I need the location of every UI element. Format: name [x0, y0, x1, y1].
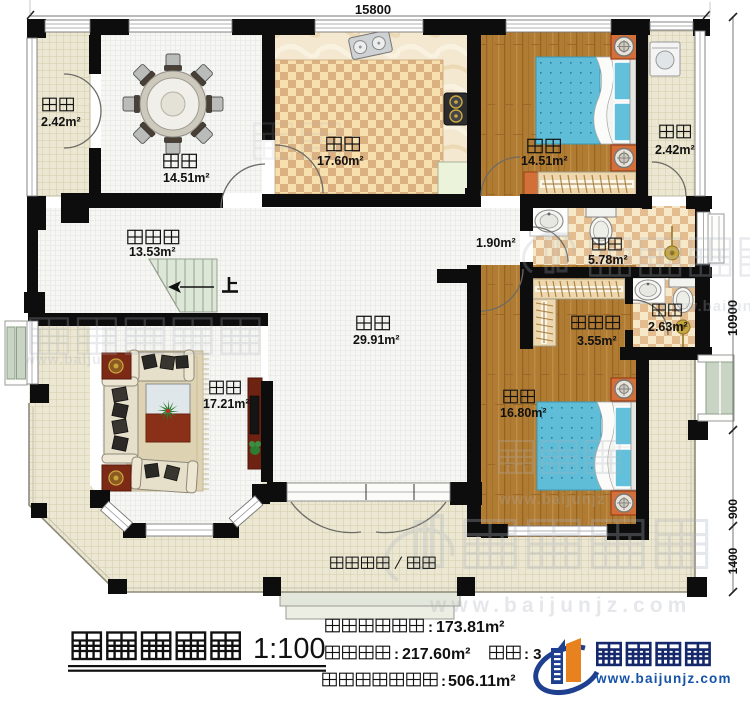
svg-text:: 3: : 3: [524, 646, 542, 663]
svg-text:17.60m²: 17.60m²: [317, 154, 364, 168]
svg-text:17.21m²: 17.21m²: [203, 397, 250, 411]
svg-text:www.baijunjz.com: www.baijunjz.com: [429, 594, 691, 617]
svg-text:1.90m²: 1.90m²: [476, 236, 516, 250]
svg-text:2.42m²: 2.42m²: [655, 143, 695, 157]
svg-text:2.42m²: 2.42m²: [41, 115, 81, 129]
svg-text:13.53m²: 13.53m²: [129, 245, 176, 259]
svg-text:1:100: 1:100: [253, 633, 326, 665]
svg-text:2.63m²: 2.63m²: [648, 320, 688, 334]
svg-text:www.baijunjz: www.baijunjz: [498, 491, 605, 508]
svg-text:www.baijunjz.c: www.baijunjz.c: [659, 298, 750, 315]
svg-text:14.51m²: 14.51m²: [163, 171, 210, 185]
svg-text:5.78m²: 5.78m²: [588, 253, 628, 267]
svg-text::: :: [441, 673, 446, 690]
svg-text:16.80m²: 16.80m²: [500, 406, 547, 420]
svg-text:29.91m²: 29.91m²: [353, 333, 400, 347]
svg-text:900: 900: [726, 499, 740, 519]
svg-text:15800: 15800: [355, 2, 391, 17]
svg-text:14.51m²: 14.51m²: [521, 154, 568, 168]
svg-text:www.baijunjz.com: www.baijunjz.com: [595, 671, 732, 686]
svg-text:www.baiju: www.baiju: [23, 351, 102, 367]
svg-text:173.81m²: 173.81m²: [436, 619, 505, 636]
svg-text:217.60m²: 217.60m²: [402, 646, 471, 663]
svg-text::: :: [394, 646, 399, 663]
svg-text:3.55m²: 3.55m²: [577, 334, 617, 348]
svg-text:506.11m²: 506.11m²: [448, 673, 516, 690]
svg-text:1400: 1400: [726, 547, 740, 574]
svg-text::: :: [428, 619, 433, 636]
